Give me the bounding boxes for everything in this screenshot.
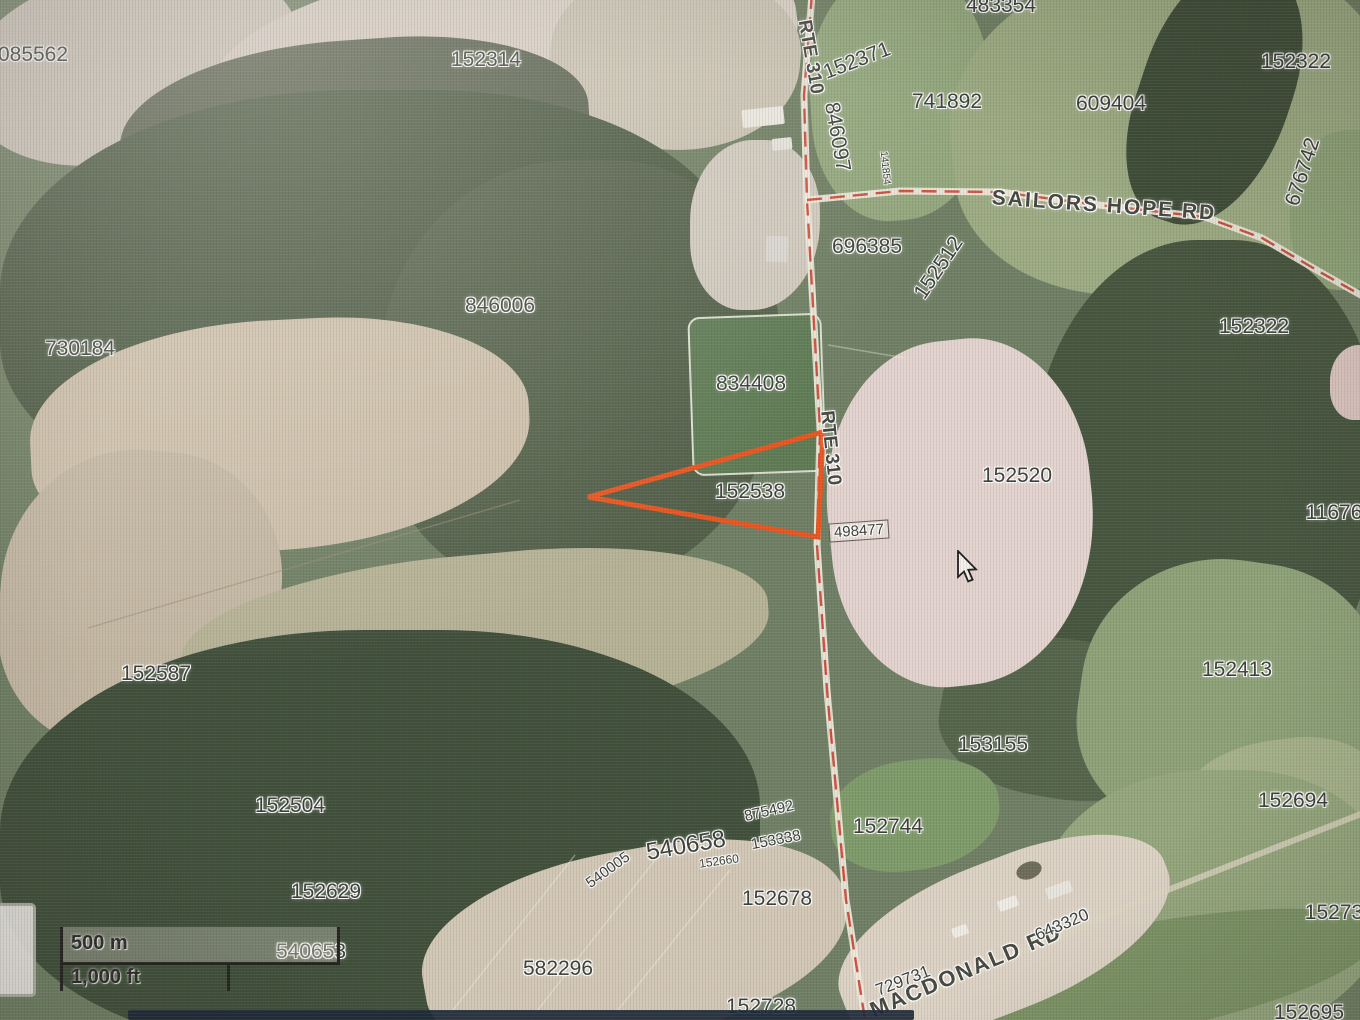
parcel-label-152512: 152512: [909, 232, 968, 304]
parcel-label-582296: 582296: [523, 957, 593, 981]
scale-bar-metric-tick: [337, 927, 340, 965]
parcel-label-834408: 834408: [716, 372, 786, 396]
parcel-label-846006: 846006: [465, 294, 535, 318]
parcel-label-152504: 152504: [255, 794, 325, 818]
parcel-label-152694: 152694: [1258, 789, 1328, 813]
scale-imperial-label: 1,000 ft: [71, 966, 140, 989]
parcel-label-152629: 152629: [291, 880, 361, 904]
parcel-label-152314: 152314: [451, 48, 521, 72]
parcel-label-152744: 152744: [853, 815, 923, 839]
scale-bar-baseline: [60, 962, 340, 965]
parcel-label-152587: 152587: [121, 662, 191, 686]
parcel-label-152322: 152322: [1261, 50, 1331, 74]
scale-bar-left-tick: [60, 927, 63, 991]
parcel-label-152413: 152413: [1202, 658, 1272, 682]
map-control-partial[interactable]: [0, 903, 36, 997]
building: [771, 137, 792, 151]
parcel-label-152322: 152322: [1219, 315, 1289, 339]
parcel-label-152538: 152538: [715, 480, 785, 504]
parcel-label-483354: 483354: [966, 0, 1036, 18]
scale-bar-imperial-tick: [227, 962, 230, 991]
parcel-label-741892: 741892: [912, 90, 982, 114]
parcel-label-152678: 152678: [742, 887, 812, 911]
parcel-label-152695: 152695: [1274, 1001, 1344, 1020]
parcel-label-085562: 085562: [0, 43, 68, 67]
parcel-label-730184: 730184: [45, 337, 115, 361]
scale-bar: 500 m 1,000 ft: [60, 925, 342, 993]
parcel-label-153155: 153155: [958, 733, 1028, 757]
building: [766, 236, 789, 263]
parcel-label-152520: 152520: [982, 464, 1052, 488]
parcel-label-609404: 609404: [1076, 92, 1146, 116]
map-viewport[interactable]: 085562152314483354152371RTE 310846097741…: [0, 0, 1360, 1020]
parcel-label-11676: 11676: [1306, 501, 1360, 525]
building: [741, 106, 785, 128]
terrain-patch: [690, 140, 820, 310]
screen-bezel-strip: [128, 1010, 914, 1020]
scale-metric-label: 500 m: [71, 932, 128, 955]
parcel-label-15273: 15273: [1305, 901, 1360, 925]
parcel-label-696385: 696385: [832, 235, 902, 259]
